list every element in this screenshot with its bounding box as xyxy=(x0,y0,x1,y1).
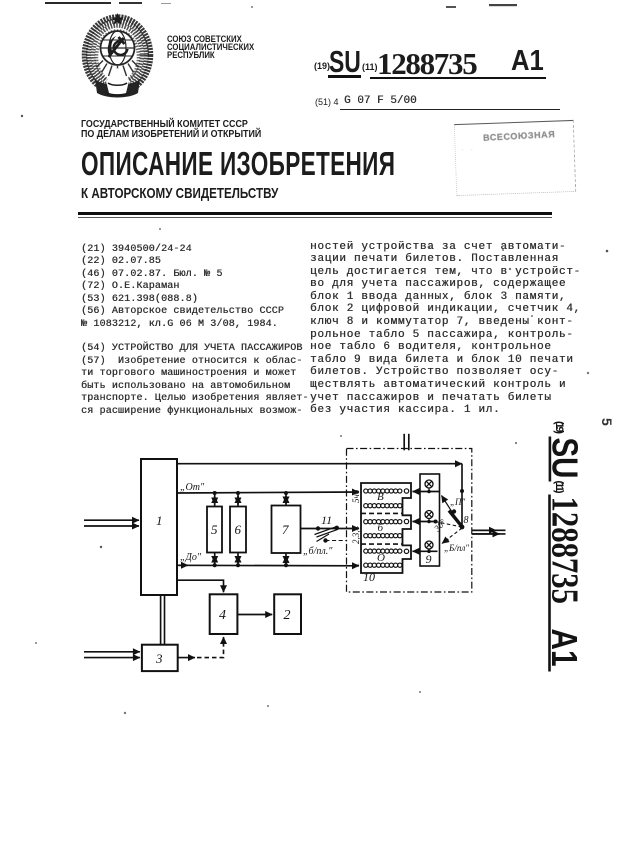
svg-text:„П″: „П″ xyxy=(450,497,466,507)
svg-text:(19): (19) xyxy=(553,421,565,434)
svg-text:б: б xyxy=(378,522,384,534)
svg-text:(11): (11) xyxy=(553,481,565,494)
svg-text:11: 11 xyxy=(321,513,332,527)
svg-text:„Б/пл″: „Б/пл″ xyxy=(444,543,469,553)
svg-text:5: 5 xyxy=(599,418,615,426)
svg-text:О: О xyxy=(377,552,385,564)
svg-text:5ч6: 5ч6 xyxy=(351,489,361,503)
svg-text:9: 9 xyxy=(426,552,432,566)
svg-text:1: 1 xyxy=(351,563,361,568)
svg-text:5: 5 xyxy=(211,522,218,537)
svg-text:3: 3 xyxy=(155,651,163,666)
svg-text:2: 2 xyxy=(284,608,291,623)
svg-text:2,3,4: 2,3,4 xyxy=(351,526,361,545)
svg-text:6: 6 xyxy=(235,522,242,537)
svg-text:„б/пл.″: „б/пл.″ xyxy=(303,546,333,557)
svg-text:„До″: „До″ xyxy=(180,552,202,563)
svg-text:4: 4 xyxy=(219,608,226,623)
svg-text:В: В xyxy=(377,491,384,503)
svg-text:„От″: „От″ xyxy=(180,482,205,493)
svg-text:30°: 30° xyxy=(431,517,448,534)
svg-text:7: 7 xyxy=(282,522,289,537)
svg-text:8: 8 xyxy=(464,515,469,526)
svg-text:1: 1 xyxy=(156,513,163,528)
svg-text:10: 10 xyxy=(363,570,375,584)
